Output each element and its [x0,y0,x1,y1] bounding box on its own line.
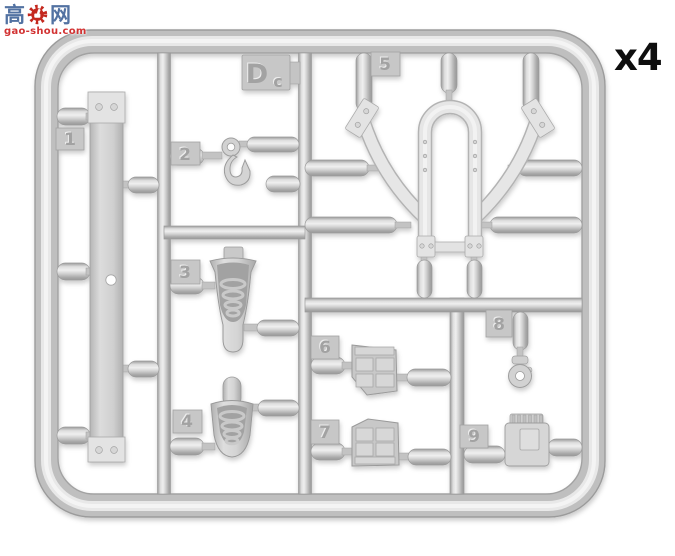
watermark-logo: 高 网 gao-shou.com [4,2,87,37]
part-number-8: 8 [493,315,505,335]
sprue-code-suffix: c [273,72,282,91]
connector-part3-runner2 [244,320,299,336]
sprue-code-tab: D D c c [242,55,300,91]
connector-part4-runner2 [248,400,299,416]
gear-thumbs-up-icon [27,4,48,25]
watermark-char-right: 网 [50,0,71,29]
runner-vertical-2 [299,53,312,494]
part-number-tab-9: 9 9 [460,425,488,448]
part-6-grille-panel [352,345,397,395]
connector-runner2-part7 [311,443,353,460]
quantity-label: x4 [614,36,662,79]
connector-part7-runner3 [397,449,451,465]
connector-frame-part1-bottom [57,427,92,444]
connector-runner2-part6 [311,357,353,374]
part-number-tab-5: 5 5 [371,52,400,76]
runner-horizontal-2 [305,298,582,312]
connector-bottom-stub-left [417,252,432,298]
part-3-funnel [210,247,256,352]
connector-part1-runner-upper [122,177,159,193]
part-number-4: 4 [181,412,193,432]
connector-bottom-stub-right [467,252,482,298]
connector-low-right [478,217,582,233]
part-number-tab-2: 2 2 [171,142,200,165]
runner-horizontal-1 [164,226,305,239]
part-number-tab-8: 8 8 [486,310,512,337]
connector-frame-part1-top [57,108,92,125]
part-number-9: 9 [468,427,480,447]
part-number-tab-7: 7 7 [311,420,339,444]
part-number-tab-3: 3 3 [171,260,200,284]
runner-vertical-1 [158,53,171,494]
connector-mid-left [305,160,381,176]
part-number-tab-6: 6 6 [311,336,339,359]
connector-part9-frame [546,439,582,456]
connector-hook-runner2 [239,137,299,152]
part-number-3: 3 [179,263,191,283]
part-number-5: 5 [379,55,391,75]
part-4-funnel [211,377,253,457]
sprue-code-letter: D [246,59,268,90]
connector-part6-runner3 [396,369,451,386]
sprue-diagram-page: 高 网 gao-shou.com x4 [0,0,675,556]
part-1-bracket-bar [88,92,125,462]
part-number-2: 2 [179,145,191,165]
watermark-char-left: 高 [4,0,25,29]
part-number-7: 7 [319,423,331,443]
sprue-image: D D c c [0,0,675,556]
part-number-6: 6 [319,338,331,358]
connector-runner3-part9 [464,446,505,463]
connector-frame-part1-mid [57,263,92,280]
connector-stub-runner2 [266,176,300,192]
part-9-canister [505,414,549,466]
watermark-url: gao-shou.com [4,26,87,37]
part-number-tab-1: 1 1 [56,128,84,150]
part-number-1: 1 [64,130,76,150]
connector-top-stub-center [441,53,457,102]
connector-runner1-part4 [170,438,215,455]
part-7-grille-panel [352,419,399,466]
connector-part1-runner-lower [122,361,159,377]
connector-low-left [305,217,411,233]
part-number-tab-4: 4 4 [173,410,202,433]
runner-vertical-3 [450,298,464,494]
watermark-title-row: 高 网 [4,2,87,26]
